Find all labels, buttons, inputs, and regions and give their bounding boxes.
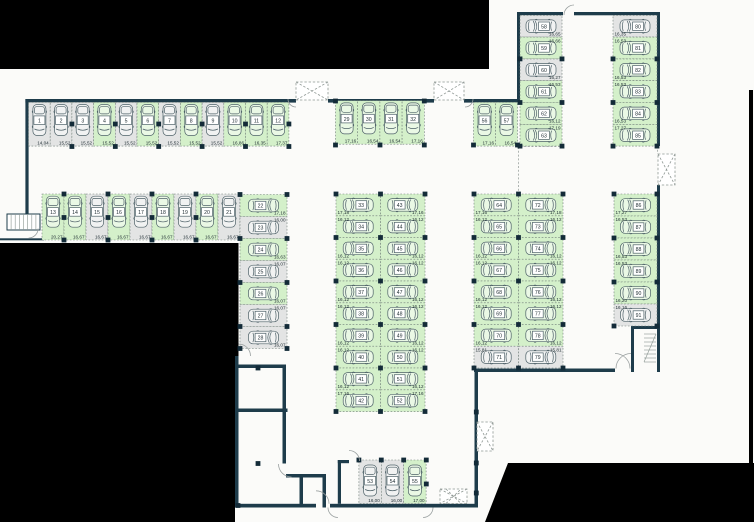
- svg-text:16,67: 16,67: [73, 235, 85, 240]
- svg-text:79: 79: [535, 355, 541, 361]
- svg-text:58: 58: [541, 24, 547, 30]
- svg-text:16,63: 16,63: [274, 255, 286, 260]
- svg-text:42: 42: [358, 399, 364, 405]
- svg-text:16,53: 16,53: [615, 38, 627, 43]
- svg-text:16,12: 16,12: [550, 297, 562, 302]
- svg-text:16,67: 16,67: [117, 235, 129, 240]
- svg-text:17,18: 17,18: [274, 211, 286, 216]
- svg-text:1: 1: [38, 118, 41, 124]
- svg-text:83: 83: [635, 90, 641, 96]
- svg-text:59: 59: [541, 46, 547, 52]
- svg-text:16,12: 16,12: [338, 297, 350, 302]
- svg-text:16,54: 16,54: [505, 141, 517, 146]
- svg-text:15,52: 15,52: [81, 141, 93, 146]
- svg-text:9: 9: [211, 118, 214, 124]
- svg-text:16,67: 16,67: [183, 235, 195, 240]
- svg-text:15,52: 15,52: [146, 141, 158, 146]
- svg-text:16,07: 16,07: [274, 306, 286, 311]
- svg-text:81: 81: [635, 46, 641, 52]
- svg-text:16,12: 16,12: [476, 304, 488, 309]
- svg-text:16,53: 16,53: [549, 82, 561, 87]
- svg-text:54: 54: [390, 479, 396, 485]
- svg-text:87: 87: [636, 225, 642, 231]
- svg-text:16,67: 16,67: [161, 235, 173, 240]
- svg-text:16,53: 16,53: [615, 119, 627, 124]
- svg-text:16,12: 16,12: [550, 340, 562, 345]
- svg-text:66: 66: [496, 247, 502, 253]
- svg-text:20,27: 20,27: [51, 235, 63, 240]
- svg-text:53: 53: [367, 479, 373, 485]
- svg-text:33: 33: [358, 203, 364, 209]
- svg-text:16,12: 16,12: [476, 340, 488, 345]
- svg-text:49: 49: [397, 334, 403, 340]
- svg-text:43: 43: [397, 203, 403, 209]
- svg-text:31: 31: [388, 117, 394, 123]
- svg-text:16,12: 16,12: [550, 253, 562, 258]
- svg-text:25: 25: [258, 270, 264, 276]
- svg-text:16,12: 16,12: [412, 347, 424, 352]
- svg-text:17,16: 17,16: [338, 391, 350, 396]
- svg-text:15,52: 15,52: [211, 141, 223, 146]
- svg-text:48: 48: [397, 312, 403, 318]
- svg-text:16,12: 16,12: [412, 304, 424, 309]
- svg-text:2: 2: [60, 118, 63, 124]
- svg-text:88: 88: [636, 247, 642, 253]
- svg-text:16,00: 16,00: [274, 218, 286, 223]
- svg-text:16,12: 16,12: [550, 304, 562, 309]
- svg-text:56: 56: [482, 118, 488, 124]
- svg-text:16,12: 16,12: [338, 217, 350, 222]
- svg-text:14,04: 14,04: [37, 141, 49, 146]
- svg-text:28: 28: [258, 336, 264, 342]
- svg-text:65: 65: [496, 225, 502, 231]
- svg-text:16,67: 16,67: [205, 235, 217, 240]
- svg-text:57: 57: [504, 118, 510, 124]
- svg-text:77: 77: [535, 312, 541, 318]
- svg-text:51: 51: [397, 377, 403, 383]
- svg-text:84: 84: [635, 112, 641, 118]
- svg-text:16,65: 16,65: [549, 31, 561, 36]
- svg-text:78: 78: [535, 334, 541, 340]
- svg-text:16,12: 16,12: [412, 260, 424, 265]
- svg-text:17,16: 17,16: [411, 139, 423, 144]
- svg-text:16,12: 16,12: [476, 297, 488, 302]
- svg-text:80: 80: [635, 24, 641, 30]
- svg-text:13: 13: [50, 210, 56, 216]
- svg-text:16,12: 16,12: [550, 217, 562, 222]
- svg-text:7: 7: [168, 118, 171, 124]
- svg-text:16,53: 16,53: [615, 75, 627, 80]
- svg-text:34: 34: [358, 225, 364, 231]
- svg-text:52: 52: [397, 399, 403, 405]
- svg-text:64: 64: [496, 203, 502, 209]
- svg-text:15,52: 15,52: [189, 141, 201, 146]
- svg-text:44: 44: [397, 225, 403, 231]
- svg-text:29: 29: [344, 117, 350, 123]
- svg-text:55: 55: [412, 479, 418, 485]
- svg-text:17,16: 17,16: [483, 141, 495, 146]
- svg-text:19: 19: [182, 210, 188, 216]
- svg-text:15,52: 15,52: [124, 141, 136, 146]
- svg-text:86: 86: [636, 203, 642, 209]
- svg-text:73: 73: [535, 225, 541, 231]
- svg-text:16,35: 16,35: [254, 141, 266, 146]
- svg-text:63: 63: [541, 133, 547, 139]
- svg-text:68: 68: [496, 290, 502, 296]
- svg-text:15,52: 15,52: [102, 141, 114, 146]
- svg-text:16,12: 16,12: [338, 304, 350, 309]
- svg-text:16,12: 16,12: [549, 119, 561, 124]
- svg-text:8: 8: [190, 118, 193, 124]
- svg-text:16,53: 16,53: [616, 254, 628, 259]
- svg-text:62: 62: [541, 112, 547, 118]
- svg-text:16,86: 16,86: [233, 141, 245, 146]
- svg-text:4: 4: [103, 118, 106, 124]
- svg-text:74: 74: [535, 247, 541, 253]
- svg-text:3: 3: [81, 118, 84, 124]
- svg-text:15,52: 15,52: [167, 141, 179, 146]
- svg-text:26: 26: [258, 292, 264, 298]
- svg-text:15: 15: [94, 210, 100, 216]
- svg-text:17,16: 17,16: [345, 139, 357, 144]
- svg-text:16,53: 16,53: [616, 217, 628, 222]
- svg-text:82: 82: [635, 68, 641, 74]
- svg-text:16,16: 16,16: [616, 305, 628, 310]
- svg-text:15,81: 15,81: [550, 347, 562, 352]
- svg-text:12: 12: [275, 118, 281, 124]
- svg-text:16,35: 16,35: [615, 31, 627, 36]
- svg-text:17,16: 17,16: [412, 391, 424, 396]
- svg-text:16,12: 16,12: [338, 340, 350, 345]
- svg-text:16,12: 16,12: [476, 260, 488, 265]
- svg-text:16,12: 16,12: [338, 384, 350, 389]
- svg-text:16,07: 16,07: [274, 299, 286, 304]
- svg-text:6: 6: [146, 118, 149, 124]
- svg-text:16,12: 16,12: [412, 340, 424, 345]
- svg-text:16,12: 16,12: [476, 217, 488, 222]
- svg-text:16,12: 16,12: [338, 253, 350, 258]
- svg-text:17,16: 17,16: [412, 210, 424, 215]
- svg-text:20: 20: [204, 210, 210, 216]
- svg-text:11: 11: [254, 118, 259, 124]
- svg-text:46: 46: [397, 268, 403, 274]
- svg-text:18: 18: [160, 210, 166, 216]
- svg-text:72: 72: [535, 203, 541, 209]
- svg-text:17: 17: [138, 210, 144, 216]
- svg-text:21: 21: [226, 210, 232, 216]
- svg-text:16,12: 16,12: [338, 260, 350, 265]
- svg-text:45: 45: [397, 247, 403, 253]
- svg-text:17,18: 17,18: [338, 210, 350, 215]
- svg-text:85: 85: [635, 133, 641, 139]
- svg-text:5: 5: [125, 118, 128, 124]
- svg-text:16: 16: [116, 210, 122, 216]
- svg-text:36: 36: [358, 268, 364, 274]
- svg-text:32: 32: [410, 117, 416, 123]
- svg-text:17,27: 17,27: [615, 126, 627, 131]
- svg-text:50: 50: [397, 355, 403, 361]
- svg-text:41: 41: [358, 377, 364, 383]
- svg-text:16,54: 16,54: [389, 139, 401, 144]
- svg-text:16,53: 16,53: [616, 261, 628, 266]
- svg-text:37: 37: [358, 290, 364, 296]
- svg-text:16,67: 16,67: [227, 235, 239, 240]
- svg-text:27: 27: [258, 314, 264, 320]
- svg-text:67: 67: [496, 268, 502, 274]
- svg-text:91: 91: [636, 313, 642, 319]
- svg-text:61: 61: [541, 90, 547, 96]
- svg-text:71: 71: [496, 355, 502, 361]
- svg-text:16,12: 16,12: [412, 297, 424, 302]
- svg-text:16,00: 16,00: [368, 498, 380, 503]
- svg-text:16,54: 16,54: [367, 139, 379, 144]
- svg-text:40: 40: [358, 355, 364, 361]
- svg-text:16,12: 16,12: [412, 253, 424, 258]
- svg-text:90: 90: [636, 291, 642, 297]
- svg-text:16,12: 16,12: [412, 217, 424, 222]
- svg-text:17,27: 17,27: [616, 210, 628, 215]
- svg-text:16,00: 16,00: [391, 498, 403, 503]
- svg-text:30: 30: [366, 117, 372, 123]
- svg-text:17,00: 17,00: [413, 498, 425, 503]
- svg-text:16,07: 16,07: [274, 262, 286, 267]
- svg-text:60: 60: [541, 68, 547, 74]
- svg-text:10: 10: [232, 118, 238, 124]
- svg-text:17,19: 17,19: [549, 126, 561, 131]
- svg-text:76: 76: [535, 290, 541, 296]
- svg-text:70: 70: [496, 334, 502, 340]
- svg-text:16,12: 16,12: [338, 347, 350, 352]
- svg-text:17,37: 17,37: [276, 141, 288, 146]
- svg-text:16,67: 16,67: [139, 235, 151, 240]
- svg-text:16,12: 16,12: [412, 384, 424, 389]
- svg-text:15,81: 15,81: [476, 347, 488, 352]
- svg-text:16,27: 16,27: [549, 75, 561, 80]
- svg-text:39: 39: [358, 334, 364, 340]
- svg-text:14: 14: [72, 210, 78, 216]
- svg-text:17,18: 17,18: [550, 210, 562, 215]
- svg-text:24: 24: [258, 248, 264, 254]
- svg-text:16,20: 16,20: [616, 298, 628, 303]
- svg-text:15,52: 15,52: [59, 141, 71, 146]
- svg-text:16,53: 16,53: [615, 82, 627, 87]
- svg-text:89: 89: [636, 269, 642, 275]
- svg-text:16,67: 16,67: [95, 235, 107, 240]
- svg-text:16,12: 16,12: [476, 253, 488, 258]
- svg-text:35: 35: [358, 247, 364, 253]
- svg-text:16,66: 16,66: [549, 38, 561, 43]
- svg-text:69: 69: [496, 312, 502, 318]
- svg-text:17,16: 17,16: [476, 210, 488, 215]
- svg-text:23: 23: [258, 226, 264, 232]
- svg-text:75: 75: [535, 268, 541, 274]
- svg-text:22: 22: [258, 204, 264, 210]
- svg-text:16,12: 16,12: [550, 260, 562, 265]
- svg-text:38: 38: [358, 312, 364, 318]
- svg-text:47: 47: [397, 290, 403, 296]
- svg-text:16,07: 16,07: [274, 343, 286, 348]
